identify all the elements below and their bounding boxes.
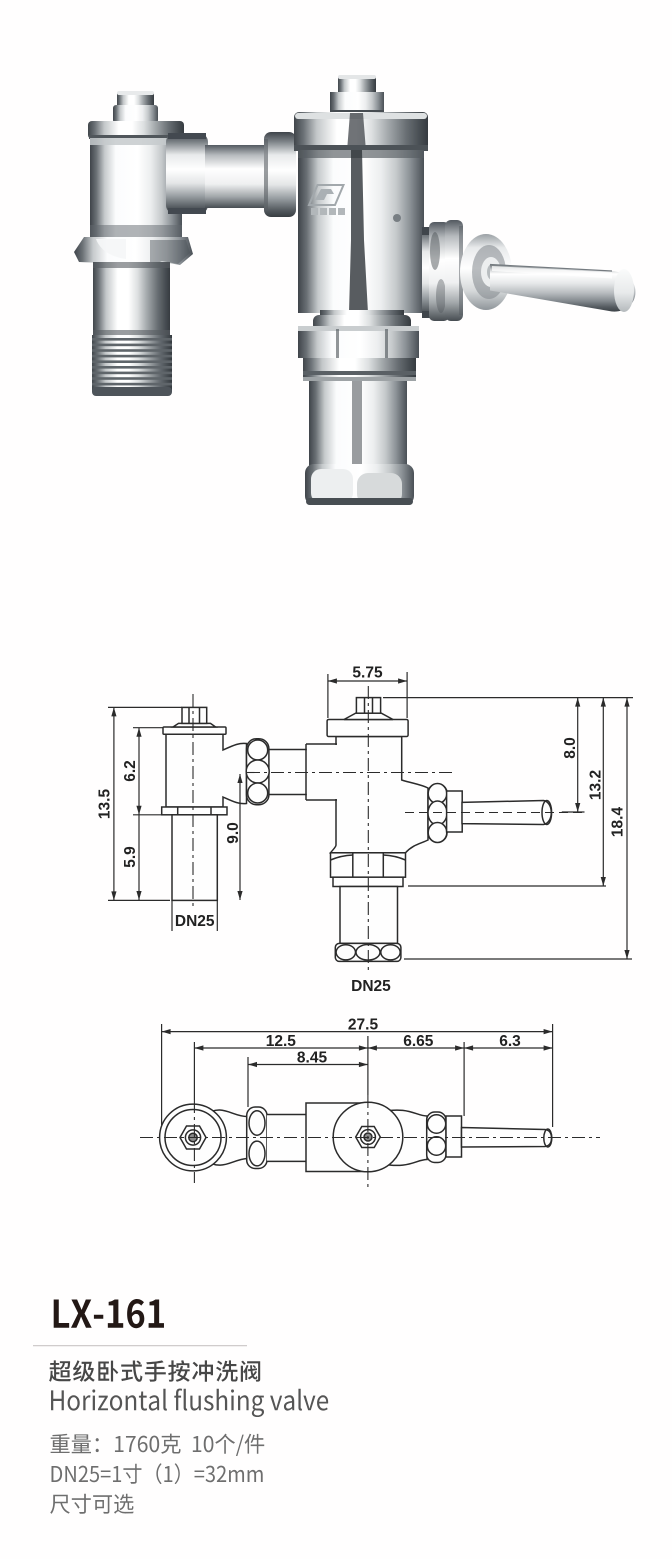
svg-text:6.3: 6.3 xyxy=(499,1033,521,1050)
svg-text:5.9: 5.9 xyxy=(122,846,139,868)
svg-text:DN25: DN25 xyxy=(351,978,391,995)
svg-text:6.65: 6.65 xyxy=(403,1033,434,1050)
svg-text:8.0: 8.0 xyxy=(562,737,579,759)
svg-text:13.5: 13.5 xyxy=(97,789,114,820)
svg-text:18.4: 18.4 xyxy=(609,807,626,838)
svg-text:6.2: 6.2 xyxy=(122,760,139,782)
svg-text:12.5: 12.5 xyxy=(266,1033,297,1050)
svg-text:8.45: 8.45 xyxy=(297,1050,328,1067)
svg-text:27.5: 27.5 xyxy=(348,1017,379,1034)
svg-text:DN25: DN25 xyxy=(175,913,215,930)
svg-text:13.2: 13.2 xyxy=(588,770,605,800)
svg-text:9.0: 9.0 xyxy=(225,822,242,844)
svg-text:5.75: 5.75 xyxy=(352,665,383,682)
